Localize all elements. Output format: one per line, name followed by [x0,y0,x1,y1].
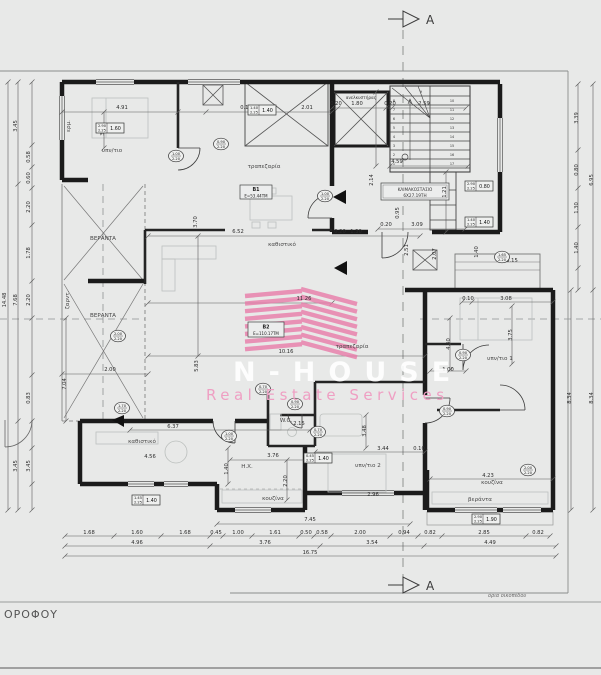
door-tag-bottom: 2.20 [225,437,234,441]
dimension-label: 3.76 [259,540,271,546]
veranda-left [62,184,145,421]
stair-tread-number: 11 [450,108,454,112]
stair-tread-number: 15 [450,144,454,148]
dimension-label: 3.70 [193,216,199,228]
window-tag-bottom: 2.25 [250,111,258,115]
dimension-label: 3.45 [13,460,19,472]
dimension-label: 1.78 [26,247,32,259]
dimension-label: 4.40 [446,338,452,350]
stair-tread-number: 2 [393,153,395,157]
stair-label-line1: ΚΛΙΜΑΚΟΣΤΑΣΙΟ [398,187,433,192]
dimension-label: 3.45 [26,460,32,472]
dimension-label: 3.75 [508,329,514,341]
door-tag-bottom: 2.20 [498,258,507,262]
stair-tread-number: 16 [450,153,454,157]
dimension-label: 1.40 [224,463,230,475]
window-tag-main: 1.40 [262,108,273,114]
door-tag: 2.002.20 [521,464,536,476]
dimension-label: 0.82 [532,530,544,536]
unit-b1-id: Β1 [253,187,260,193]
window-tag-top: 2.90 [467,182,476,186]
dimension-label: 4.56 [144,454,156,460]
stair-tread-number: 5 [393,126,395,130]
window-tag-top: 2.90 [98,124,107,128]
dimension-label: 3.08 [500,296,512,302]
stair-tread-number: 1 [393,162,395,166]
dimension-label: 8.34 [567,392,573,404]
section-label-bottom: A [426,579,435,593]
dimension-label: 4.23 [482,473,494,479]
window-tag-main: 1.60 [110,126,121,132]
dimension-label: 3.09 [411,222,423,228]
section-marker-bottom [388,577,419,593]
door-tag-bottom: 2.20 [291,405,300,409]
dimension-label: 2.20 [283,475,289,487]
unit-b2-tag: Β2 Ε=110.17ΤΜ [248,322,284,337]
door-tag-bottom: 2.20 [443,412,452,416]
door-tag-top: 1.00 [172,152,181,156]
dimension-label: 3.48 [362,425,368,437]
room-label: κουζίνα [262,495,284,502]
dimension-label: 2.00 [354,530,366,536]
stair-tread-number: 14 [450,135,454,139]
dimension-label: 2.00 [104,367,116,373]
dimension-label: 0.45 [210,530,222,536]
window-tag: 2.902.250.80 [465,181,493,191]
room-label: ΒΕΡΑΝΤΑ [90,236,116,242]
room-label: ΒΕΡΑΝΤΑ [90,313,116,319]
dimension-label: 11.26 [297,296,312,302]
door-tag: 0.702.20 [311,426,326,438]
window-tag: 2.902.251.90 [472,514,500,524]
dimension-label: 1.40 [574,242,580,254]
dimension-label: 0.94 [398,530,410,536]
window-tag: 0.452.251.40 [304,453,332,463]
door-tag: 1.002.20 [169,150,184,162]
dimension-label: 2.85 [478,530,490,536]
dimension-label: 6.52 [232,229,244,235]
door-tag: 2.002.20 [111,330,126,342]
dimension-label: 7.68 [13,294,19,306]
dimension-label: 7.45 [304,517,316,523]
door-tag: 1.002.20 [222,430,237,442]
dimension-label: 3.76 [267,453,279,459]
title-block-lines [0,602,601,668]
window-tag: 1.402.251.40 [465,217,493,227]
dimension-label: 1.40 [474,246,480,258]
dimension-label: 4.91 [116,105,128,111]
door-tag-top: 0.70 [314,428,323,432]
window-tag-bottom: 2.25 [467,187,475,191]
door-tag-bottom: 2.20 [118,409,127,413]
dimension-label: 2.15 [293,421,305,427]
dimension-label: 7.04 [62,378,68,390]
dimension-label: 6.37 [167,424,179,430]
dimension-label: 0.10 [413,446,425,452]
window-tag-bottom: 2.25 [98,129,106,133]
dimension-label: 1.68 [179,530,191,536]
stair-tread-number: 10 [450,99,454,103]
room-label: W.C. [280,418,293,424]
watermark-brand-text: N-HOUSE [233,357,463,388]
window-tag-bottom: 2.25 [467,223,475,227]
dimension-label: 2.20 [26,201,32,213]
dimension-label: 4.49 [484,540,496,546]
stair-label-box: ΚΛΙΜΑΚΟΣΤΑΣΙΟ 6Χ27.19ΤΗ [381,183,449,200]
unit-b1-area: Ε=53.44ΤΜ [244,194,268,199]
dimension-label: 2.01 [301,105,313,111]
dimension-label: 0.10 [462,296,474,302]
dimension-label: 1.61 [269,530,281,536]
window-tag-bottom: 2.25 [306,459,314,463]
door-tag: 0.902.20 [214,138,229,150]
door-tag-top: 1.00 [225,432,234,436]
room-label: καθιστικό [128,438,156,445]
window-tag: 1.452.251.40 [132,495,160,505]
stair-tread-number: 12 [450,117,454,121]
dimension-label: 2.59 [418,101,430,107]
door-tag-top: 1.70 [118,404,127,408]
door-tag-top: 0.90 [217,140,226,144]
door-tag-bottom: 2.20 [524,471,533,475]
dimension-label: 4.96 [131,540,143,546]
dimension-label: 1.60 [131,530,143,536]
stair-tread-number: 3 [393,144,395,148]
stair-tread-number: 8 [393,99,395,103]
window-tag-top: 2.90 [474,515,483,519]
room-label: κουζίνα [481,479,503,486]
window-tag-top: 1.40 [250,106,259,110]
dimension-label: 16.75 [303,550,318,556]
window-tag-main: 0.80 [479,184,490,190]
dimension-label: 14.48 [2,293,8,308]
dimension-label: 3.45 [13,120,19,132]
door-tag-top: 2.00 [524,466,533,470]
room-label: ζαρντ. [65,291,71,310]
watermark-tagline-text: Real Estate Services [206,386,449,404]
floor-plan-canvas: A A ΚΛΙΜΑΚΟΣΤΑΣΙΟ 6Χ27.19ΤΗ ανελκυστήρας… [0,0,601,675]
door-tag: 0.902.20 [440,405,455,417]
dimension-label: 2.20 [26,294,32,306]
dimension-label: 0.20 [330,101,342,107]
door-tag: 1.702.20 [115,402,130,414]
dimension-label: 1.80 [351,101,363,107]
dimension-label: 1.00 [232,530,244,536]
window-tag: 1.402.251.40 [248,105,276,115]
room-label: υπν/τιο [102,148,123,154]
window-tag-main: 1.90 [486,517,497,523]
door-tag-top: 0.90 [459,351,468,355]
room-label: βεράντα [468,496,492,503]
elevator-label: ανελκυστήρας [346,95,377,100]
door-tag-bottom: 2.20 [172,157,181,161]
room-label: υπν/τιο 2 [355,463,381,469]
room-label: καθιστικό [268,241,296,248]
dimension-label: 0.82 [424,530,436,536]
section-marker-top [388,11,419,27]
door-tag-bottom: 2.20 [114,337,123,341]
duct-shaft-icon [203,85,437,270]
unit-b2-area: Ε=110.17ΤΜ [253,331,279,336]
room-label: Η.Χ. [241,464,253,470]
dimension-label: 0.80 [574,164,580,176]
boundary-note: όρια οικοπέδου [488,592,526,599]
floor-title-label: ΟΡΟΦΟΥ [4,608,58,621]
dimension-label: 2.14 [369,174,375,186]
window-tag-main: 1.40 [479,220,490,226]
dimension-label: 3.39 [574,112,580,124]
stair-tread-number: 7 [393,108,395,112]
dimension-label: 10.16 [279,349,294,355]
dimension-label: 2.51 [404,244,410,256]
stair-tread-number: 17 [450,162,454,166]
door-tag-top: 1.00 [321,192,330,196]
door-tag: 1.652.20 [495,251,510,263]
room-label: τραπεζαρία [248,163,281,170]
dimension-label: 0.95 [395,207,401,219]
dimension-label: 2.96 [367,492,379,498]
dimension-label: 0.20 [380,222,392,228]
unit-b1-tag: Β1 Ε=53.44ΤΜ [240,185,272,199]
door-tag: 1.002.20 [318,190,333,202]
dimension-label: 0.60 [26,172,32,184]
dimension-label: 1.68 [83,530,95,536]
room-label: τραπεζαρία [336,343,369,350]
door-tag-bottom: 2.20 [314,433,323,437]
stair-tread-number: 13 [450,126,454,130]
window-tag-top: 1.40 [467,218,476,222]
window-tag-main: 1.40 [318,456,329,462]
unit-b2-id: Β2 [263,325,270,331]
window-tag-bottom: 2.25 [474,520,482,524]
window-tag-bottom: 2.25 [134,501,142,505]
staircase [390,86,470,230]
stair-tread-number: 9 [420,90,422,94]
window-tag-top: 1.45 [134,496,142,500]
dimension-label: 0.20 [334,229,346,235]
dimension-label: 0.58 [316,530,328,536]
dimension-label: 3.44 [377,446,389,452]
dimension-label: 3.54 [366,540,378,546]
dimension-label: 0.50 [300,530,312,536]
room-label: ερμ. [66,120,72,132]
window-tag: 2.902.251.60 [96,123,124,133]
door-tag-top: 0.90 [443,407,452,411]
window-tag-main: 1.40 [146,498,157,504]
window-tag-top: 0.45 [306,454,314,458]
floor-plan-page: A A ΚΛΙΜΑΚΟΣΤΑΣΙΟ 6Χ27.19ΤΗ ανελκυστήρας… [0,0,601,675]
room-label: υπν/τιο 1 [487,356,513,362]
stair-label-line2: 6Χ27.19ΤΗ [403,193,426,198]
dimension-label: 1.30 [574,202,580,214]
door-tag-bottom: 2.20 [321,197,330,201]
door-tag-bottom: 2.20 [217,145,226,149]
door-tag-top: 2.00 [114,332,123,336]
door-tag-top: 1.65 [498,253,506,257]
stair-tread-number: 6 [393,117,395,121]
dimension-label: 1.30 [350,229,362,235]
dimension-label: 0.58 [26,151,32,163]
dimension-label: 5.83 [194,360,200,372]
section-label-top: A [426,13,435,27]
dimension-label: 2.07 [432,248,438,260]
stair-tread-number: 4 [393,135,395,139]
dimension-label: 1.21 [442,186,448,198]
dimension-label: 0.83 [26,392,32,404]
dimension-label: 8.34 [589,392,595,404]
dimension-label: 6.95 [589,174,595,186]
